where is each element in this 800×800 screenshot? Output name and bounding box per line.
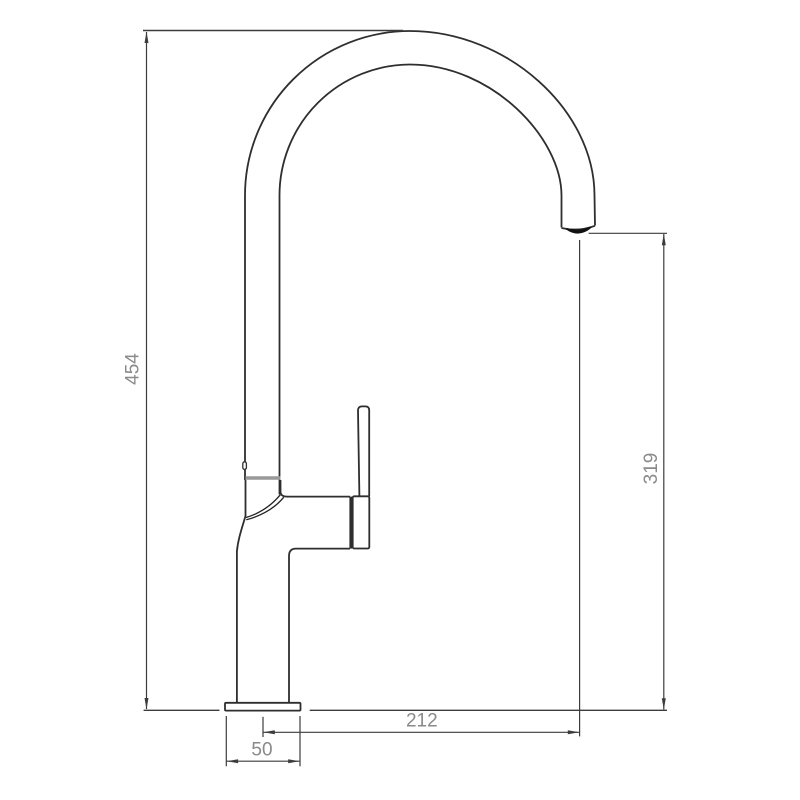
svg-text:454: 454 (123, 353, 144, 385)
svg-text:212: 212 (406, 711, 438, 732)
svg-text:319: 319 (641, 453, 662, 485)
svg-text:50: 50 (251, 740, 272, 761)
